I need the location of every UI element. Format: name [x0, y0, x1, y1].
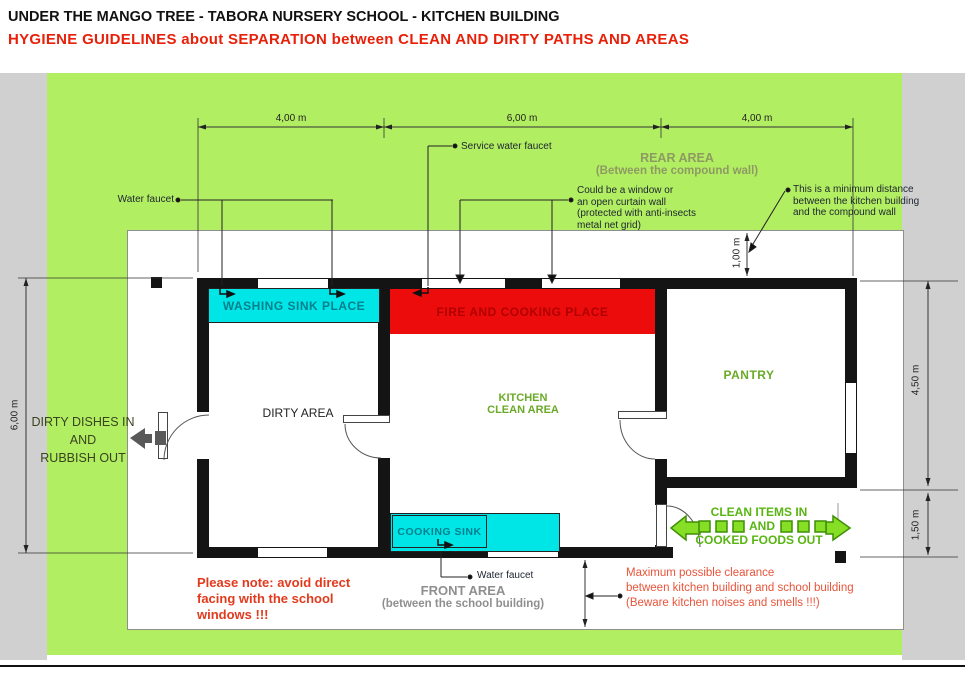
clean-flow-line3: COOKED FOODS OUT: [695, 533, 822, 547]
dirty-flow-line: AND: [31, 431, 134, 449]
window-note-line: metal net grid): [577, 220, 696, 232]
kitchen-label-line: CLEAN AREA: [487, 404, 559, 416]
rear-area-line: REAR AREA: [596, 151, 758, 165]
dim-top-left: 4,00 m: [276, 113, 307, 124]
faucet-icon: [220, 287, 452, 548]
window-note-line: (protected with anti-insects: [577, 208, 696, 220]
pantry-label: PANTRY: [724, 368, 775, 382]
school-warning-note: Please note: avoid direct facing with th…: [197, 575, 350, 623]
water-faucet-left-label: Water faucet: [112, 194, 174, 206]
min-distance-line: This is a minimum distance: [793, 184, 919, 196]
rear-area-label: REAR AREA (Between the compound wall): [596, 151, 758, 177]
dirty-area-label: DIRTY AREA: [263, 406, 334, 420]
dim-right-lower: 1,50 m: [911, 510, 922, 541]
front-area-line: (between the school building): [382, 598, 544, 610]
kitchen-clean-area-label: KITCHEN CLEAN AREA: [487, 392, 559, 416]
window-note-line: an open curtain wall: [577, 197, 696, 209]
dim-left-height: 6,00 m: [10, 400, 21, 431]
min-distance-note: This is a minimum distance between the k…: [793, 184, 919, 219]
school-warning-line: facing with the school: [197, 591, 350, 607]
clearance-line: (Beware kitchen noises and smells !!!): [626, 596, 854, 611]
clearance-note: Maximum possible clearance between kitch…: [626, 566, 854, 611]
school-warning-line: windows !!!: [197, 607, 350, 623]
clearance-line: Maximum possible clearance: [626, 566, 854, 581]
dim-top-right: 4,00 m: [742, 113, 773, 124]
clean-flow-line1: CLEAN ITEMS IN: [711, 505, 808, 519]
front-area-line: FRONT AREA: [382, 583, 544, 598]
window-note: Could be a window or an open curtain wal…: [577, 185, 696, 231]
school-warning-line: Please note: avoid direct: [197, 575, 350, 591]
min-distance-line: and the compound wall: [793, 207, 919, 219]
clearance-line: between kitchen building and school buil…: [626, 581, 854, 596]
dim-right-upper: 4,50 m: [911, 365, 922, 396]
water-faucet-bottom-label: Water faucet: [477, 570, 533, 582]
dirty-flow-line: DIRTY DISHES IN: [31, 413, 134, 431]
dirty-flow-arrow: [130, 428, 166, 449]
dirty-flow-line: RUBBISH OUT: [31, 449, 134, 467]
rear-area-line: (Between the compound wall): [596, 165, 758, 177]
min-distance-line: between the kitchen building: [793, 196, 919, 208]
dim-rear-gap: 1,00 m: [732, 238, 743, 269]
dirty-flow-label: DIRTY DISHES IN AND RUBBISH OUT: [31, 413, 134, 467]
page-bottom-rule: [0, 665, 965, 667]
window-note-line: Could be a window or: [577, 185, 696, 197]
door-swing-arcs: [164, 415, 700, 547]
kitchen-label-line: KITCHEN: [487, 392, 559, 404]
floor-plan-page: UNDER THE MANGO TREE - TABORA NURSERY SC…: [0, 0, 965, 677]
dim-top-mid: 6,00 m: [507, 113, 538, 124]
clean-flow-line2: AND: [749, 519, 775, 533]
service-water-faucet-label: Service water faucet: [461, 141, 552, 153]
front-area-label: FRONT AREA (between the school building): [382, 583, 544, 610]
